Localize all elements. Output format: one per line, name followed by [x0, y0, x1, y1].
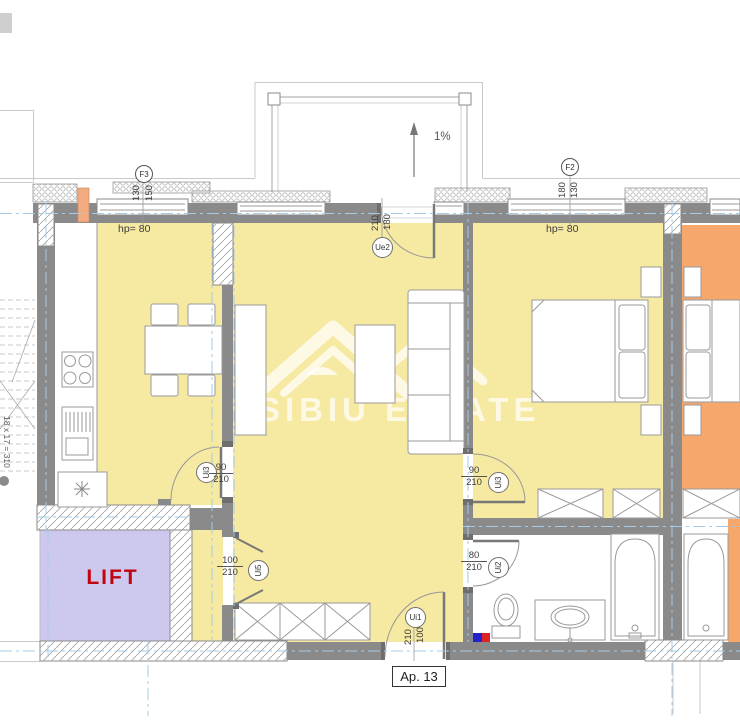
kitchen-sink — [62, 407, 93, 460]
door-label-ui5: Ui5 — [248, 560, 269, 581]
door-label-ue2: Ue2 — [372, 237, 393, 258]
neighbor-room2-floor — [728, 519, 740, 642]
grid-dim-f3-right: 150 — [144, 183, 156, 203]
neighbor-bed — [683, 300, 740, 402]
slope-label: 1% — [434, 131, 451, 143]
grid-marker-f3: F3 — [135, 165, 153, 183]
party-wall — [663, 203, 682, 660]
bedroom-window — [508, 199, 625, 215]
stairs-label: 18 x 17 = 310 — [1, 400, 13, 484]
apartment-label-text: Ap. 13 — [400, 669, 438, 684]
storage-floor — [192, 530, 223, 641]
dim-height: 210 — [461, 561, 487, 573]
nightstand — [641, 267, 661, 297]
floor-plan: SIBIU ESTATE — [0, 0, 740, 720]
chair — [151, 375, 178, 396]
grid-marker-f2: F2 — [561, 158, 579, 176]
grid-marker-f3-label: F3 — [139, 170, 148, 179]
bathroom-fixtures — [473, 534, 728, 642]
dim-height: 210 — [209, 473, 233, 485]
chair — [188, 375, 215, 396]
door-label-ue2-text: Ue2 — [375, 243, 390, 252]
door-dim-ui2: 80 210 — [461, 550, 487, 573]
coffee-table — [355, 325, 395, 403]
door-dim-ue2-height: 210 — [370, 211, 382, 235]
chair — [188, 304, 215, 325]
dim-height: 210 — [217, 566, 243, 578]
door-dim-ui3-kitchen: 90 210 — [209, 462, 233, 485]
dim-height: 210 — [461, 476, 487, 488]
bedroom-wardrobe-1 — [538, 489, 603, 518]
lift-label: LIFT — [45, 566, 180, 590]
neighbor-wardrobe — [683, 489, 740, 518]
dim-width: 100 — [222, 555, 238, 566]
dim-width: 80 — [469, 550, 480, 561]
fridge — [58, 472, 107, 507]
sofa — [408, 290, 464, 454]
door-dim-ui3-bedroom: 90 210 — [461, 465, 487, 488]
hall-wardrobe — [235, 603, 370, 640]
door-label-ui2-text: Ui2 — [494, 562, 503, 574]
slope-arrow-icon — [410, 122, 418, 177]
washbasin — [535, 600, 605, 642]
door-dim-ue2-width: 180 — [382, 210, 394, 234]
dim-width: 90 — [216, 462, 227, 473]
neighbor-window — [710, 199, 740, 215]
grid-marker-f2-label: F2 — [565, 163, 574, 172]
plan-drawing: SIBIU ESTATE — [0, 0, 740, 720]
hot-water-marker — [482, 633, 490, 642]
parapet-label-left: hp= 80 — [118, 223, 150, 235]
watermark-text: SIBIU ESTATE — [258, 391, 540, 428]
dining-table — [145, 326, 222, 374]
chair — [151, 304, 178, 325]
apartment-label: Ap. 13 — [392, 666, 446, 687]
parapet-label-right: hp= 80 — [546, 223, 578, 235]
grid-dim-f3-left: 130 — [131, 183, 143, 203]
neighbor-bathtub — [684, 534, 728, 640]
section-column — [78, 188, 89, 222]
tv-cabinet — [235, 305, 266, 435]
bathtub — [611, 534, 659, 640]
door-label-ui1-text: Ui1 — [409, 613, 421, 622]
stove — [62, 352, 93, 387]
door-label-ui5-text: Ui5 — [254, 565, 263, 577]
door-dim-ui5: 100 210 — [217, 555, 243, 578]
door-label-ui1: Ui1 — [405, 607, 426, 628]
toilet — [492, 594, 520, 638]
dim-width: 90 — [469, 465, 480, 476]
nightstand — [641, 405, 661, 435]
door-dim-ui1-height: 210 — [403, 625, 415, 649]
grid-dim-f2-right: 130 — [569, 180, 581, 200]
door-label-ui2: Ui2 — [488, 557, 509, 578]
bedroom-wardrobe-2 — [613, 489, 660, 518]
bed — [532, 300, 648, 402]
cold-water-marker — [473, 633, 482, 642]
door-label-ui3b-text: Ui3 — [494, 477, 503, 489]
grid-dim-f2-left: 180 — [557, 180, 569, 200]
door-label-ui3-bedroom: Ui3 — [488, 472, 509, 493]
